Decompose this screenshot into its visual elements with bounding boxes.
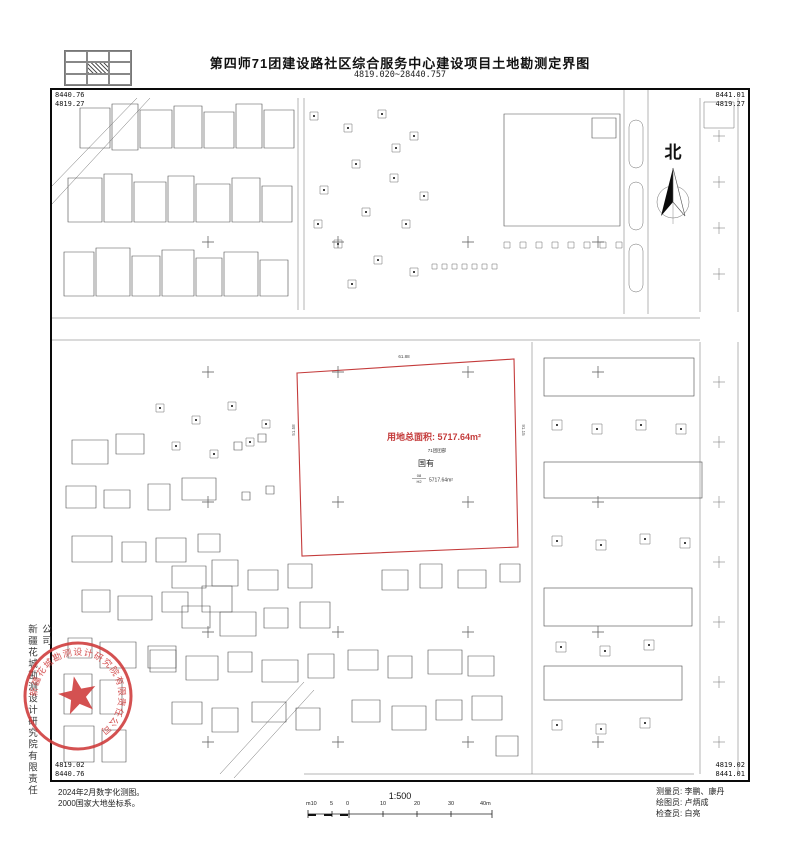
scale-ratio: 1:500 (304, 791, 496, 801)
parcel-ownership: 国有 (418, 458, 434, 468)
credit-row: 绘图员: 卢炳成 (656, 797, 724, 808)
building-cluster-bottom (150, 560, 520, 756)
parcel-locality: 71团团部 (428, 447, 447, 454)
parcel-class-area: 5717.64m² (429, 478, 453, 484)
note-line: 2024年2月数字化测图。 (58, 787, 144, 798)
rowhouse-blocks-right (544, 358, 702, 734)
scale-bar: 1:500 m10 5 0 10 20 30 40m (304, 791, 496, 821)
right-margin-strip (700, 98, 738, 774)
map-notes: 2024年2月数字化测图。 2000国家大地坐标系。 (58, 787, 144, 809)
survey-sheet: 第四师71团建设路社区综合服务中心建设项目土地勘测定界图 4819.020~28… (0, 0, 800, 866)
credit-row: 测量员: 李鹏、康丹 (656, 786, 724, 797)
cadastral-map: 用地总面积: 5717.64m² 71团团部 国有 08 H2 5717.64m… (52, 90, 747, 779)
parcel-dim-left: 51.58 (291, 424, 296, 436)
company-seal: 新疆花城勘测设计研究院有限责任公司 (12, 630, 144, 762)
parcel-class-code-top: 08 (417, 473, 422, 478)
parcel-boundary (297, 359, 518, 556)
parcel-dim-right: 91.15 (521, 424, 526, 436)
building-block-upper-left (52, 98, 304, 310)
credit-row: 检查员: 白亮 (656, 808, 724, 819)
parcel-class-code-bottom: H2 (416, 479, 422, 484)
scale-bar-graphic (304, 808, 496, 820)
map-frame: 8440.764819.27 8441.014819.27 4819.02844… (50, 88, 750, 782)
seal-star (55, 672, 100, 715)
parcel-dim-top: 61.88 (398, 354, 410, 359)
north-label: 北 (665, 143, 682, 162)
sheet-number: 4819.020~28440.757 (0, 70, 800, 80)
building-block-upper-right (432, 114, 643, 292)
parcel-area-label: 用地总面积: 5717.64m² (386, 431, 481, 442)
credits-block: 测量员: 李鹏、康丹 绘图员: 卢炳成 检查员: 白亮 (656, 786, 724, 819)
note-line: 2000国家大地坐标系。 (58, 798, 144, 809)
north-arrow: 北 (657, 143, 689, 224)
